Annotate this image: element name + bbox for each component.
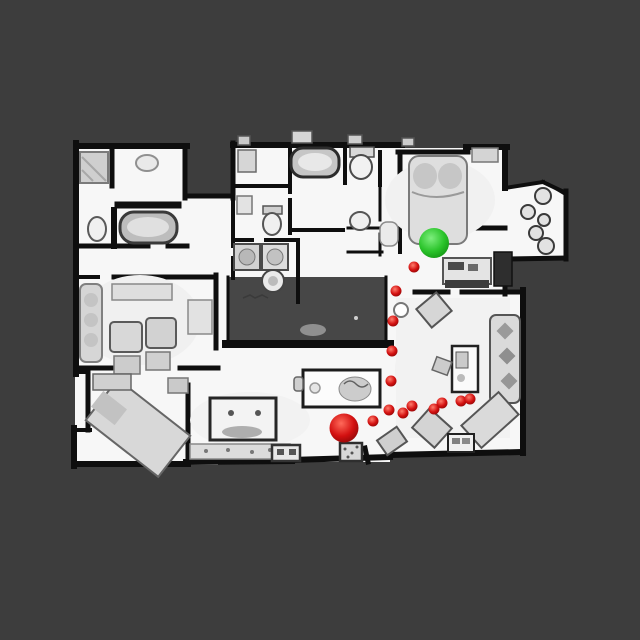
toilet-master [88,217,106,241]
table-item [448,262,464,270]
island-shadow [222,426,262,438]
ottoman [114,356,140,374]
table-centerpiece [339,377,371,401]
scan-artifact [300,324,326,336]
floor-region [183,196,235,252]
hall-cabinet [380,222,398,246]
bench [472,148,498,162]
cabinet-handle [289,449,296,455]
alcove-stool [521,205,535,219]
table-shadow [445,280,489,288]
waypoint-dot [388,316,399,327]
speckle [344,448,347,451]
scan-artifact [354,316,358,320]
table-dish [310,383,320,393]
waypoint-dot [386,376,397,387]
washer-door [239,249,255,265]
dryer-door [267,249,283,265]
wall-fixture [402,138,414,146]
cabinet-handle [277,449,284,455]
side-table-round [394,303,408,317]
toilet-guest [350,155,372,179]
alcove-stool [538,214,550,226]
table-item [462,438,470,444]
waypoint-dot [437,398,448,409]
counter-speckle [250,450,254,454]
toilet-hall [350,212,370,230]
wall-fixture [292,131,312,143]
agent-marker-sphere [330,414,359,443]
sink-cabinet [238,150,256,172]
bed-pillow [438,163,462,189]
toilet-small [263,213,281,235]
dining-chair [294,377,303,391]
alcove-stool [535,188,551,204]
sofa-cushion [84,333,98,347]
dresser [93,374,131,390]
goal-marker [419,228,449,258]
bed-pillow [413,163,437,189]
bathtub-inner [298,153,332,171]
dark-cabinet [494,252,512,286]
table-item [468,264,478,271]
waypoint-dot [391,286,402,297]
console-cabinet [112,284,172,300]
floorplan-canvas[interactable] [0,0,640,640]
wall-segment [505,258,566,259]
nightstand [168,378,188,393]
unscanned-region [228,277,386,345]
armchair [110,322,142,352]
goal-marker-sphere [419,228,449,258]
waypoint-dot [387,346,398,357]
coffee-table [448,434,474,452]
waypoint-dot [384,405,395,416]
ottoman [146,352,170,370]
sofa-cushion [84,313,98,327]
bathroom-sink [136,155,158,171]
armchair [146,318,176,348]
sink-small [237,196,252,214]
machine-drum [268,276,278,286]
waypoint-dot [409,262,420,273]
island-knob [228,410,234,416]
bathtub-inner [127,217,169,237]
viewer-stage [0,0,640,640]
agent-marker [330,414,359,443]
waypoint-dot [398,408,409,419]
counter-speckle [226,448,230,452]
alcove-stool [538,238,554,254]
wall-fixture [238,136,250,145]
wall-segment [365,448,368,462]
speckle [347,456,350,459]
sofa-cushion [84,293,98,307]
wall-fixture [348,135,362,144]
side-cabinet [188,300,212,334]
desk-item [456,352,468,368]
waypoint-dot [465,394,476,405]
counter-speckle [204,449,208,453]
island-knob [255,410,261,416]
alcove-stool [529,226,543,240]
waypoint-dot [368,416,379,427]
speckle [356,446,359,449]
table-item [452,438,460,444]
speckle [351,452,354,455]
waypoint-dot [407,401,418,412]
desk-item [457,374,465,382]
